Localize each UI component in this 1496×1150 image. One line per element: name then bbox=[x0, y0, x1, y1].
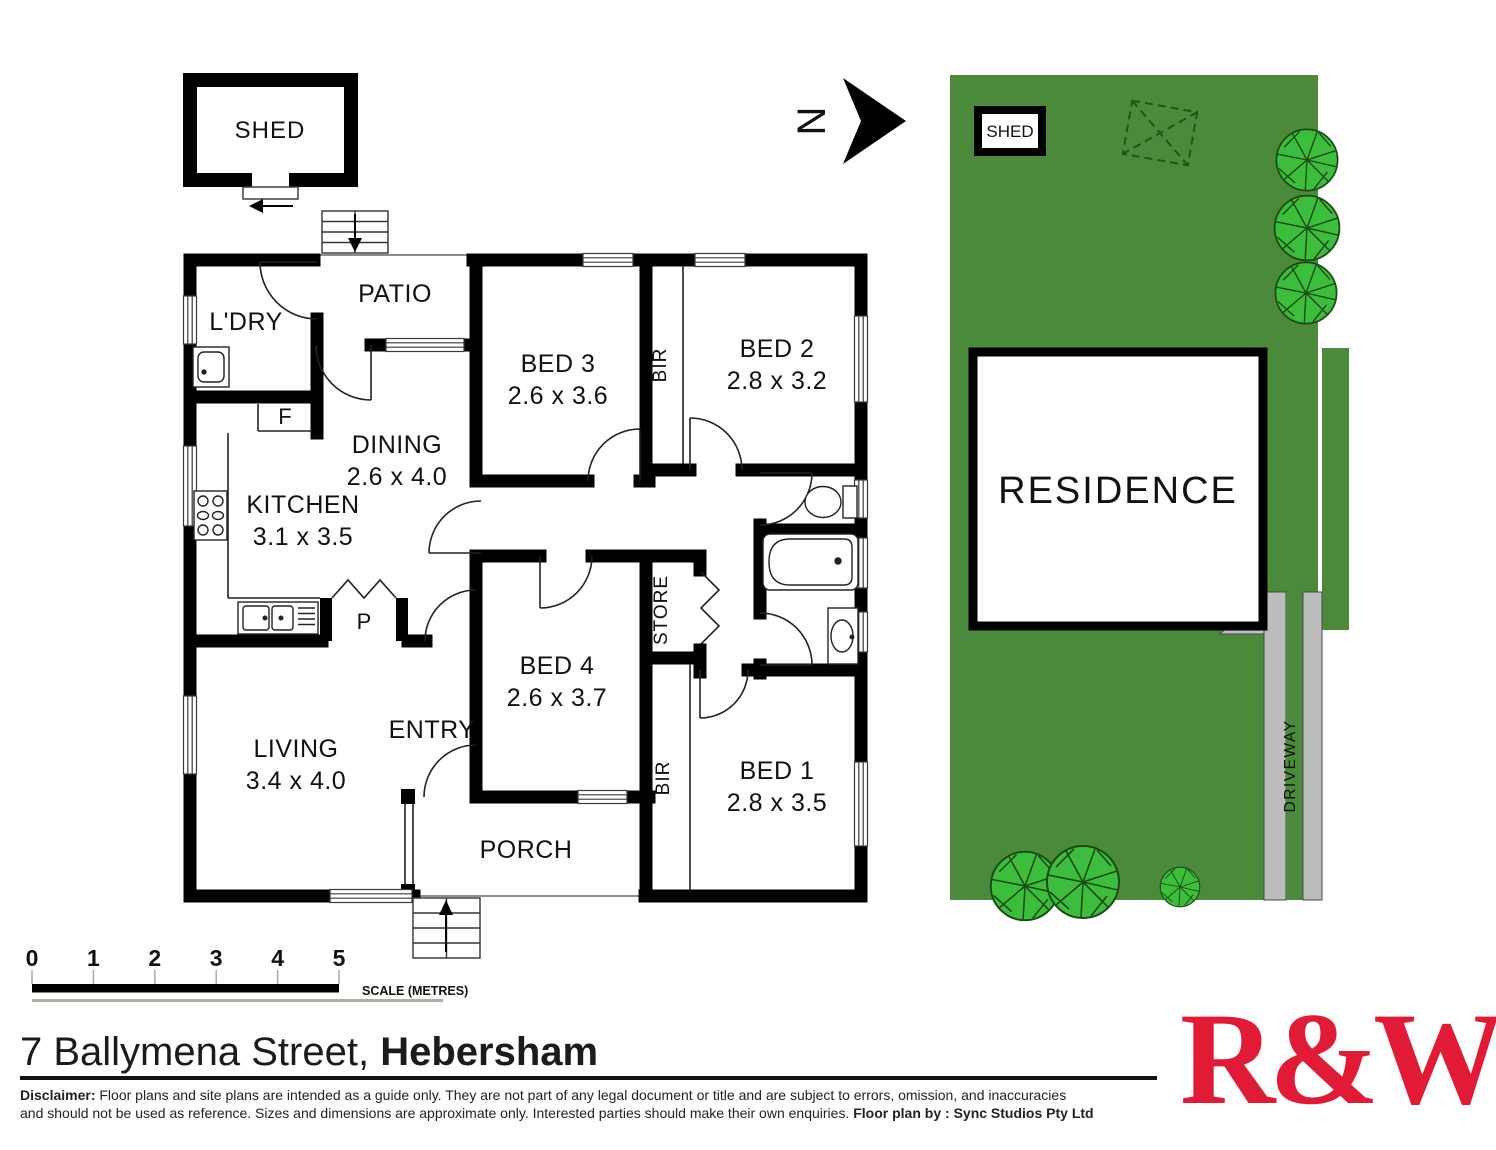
tree-icon bbox=[1160, 867, 1200, 907]
window-icon bbox=[695, 254, 745, 267]
lawn-lower bbox=[950, 592, 1265, 900]
window-icon bbox=[855, 762, 868, 846]
bir-top-label: BIR bbox=[650, 348, 671, 383]
room-label-porch: PORCH bbox=[480, 836, 573, 864]
residence-box: RESIDENCE bbox=[973, 352, 1263, 626]
vanity-icon bbox=[828, 608, 858, 664]
room-label-bed3: BED 3 bbox=[521, 350, 596, 378]
site-plan: DRIVEWAY SHED RESIDENCE bbox=[950, 75, 1349, 920]
disclaimer-line1: Disclaimer: Floor plans and site plans a… bbox=[20, 1087, 1180, 1105]
store-label: STORE bbox=[651, 575, 672, 645]
fridge-label: F bbox=[278, 404, 291, 429]
footer-divider bbox=[20, 1076, 1157, 1080]
address-street: 7 Ballymena Street, bbox=[20, 1030, 380, 1074]
disclaimer: Disclaimer: Floor plans and site plans a… bbox=[20, 1087, 1180, 1122]
room-dims-kitchen: 3.1 x 3.5 bbox=[253, 523, 353, 551]
scale-tick: 0 bbox=[26, 945, 39, 971]
residence-label: RESIDENCE bbox=[998, 470, 1238, 512]
window-icon bbox=[386, 339, 464, 352]
disclaimer-line2: and should not be used as reference. Siz… bbox=[20, 1105, 1180, 1123]
window-icon bbox=[184, 296, 197, 344]
north-label: N bbox=[790, 107, 834, 136]
address-suburb: Hebersham bbox=[380, 1030, 598, 1074]
floorplan-credit: Floor plan by : Sync Studios Pty Ltd bbox=[853, 1105, 1093, 1121]
porch-steps bbox=[413, 898, 480, 958]
room-labels: L'DRY PATIO BED 3 2.6 x 3.6 BED 2 2.8 x … bbox=[209, 280, 827, 864]
shed-outbuilding: SHED bbox=[190, 80, 351, 213]
compass: N bbox=[790, 78, 906, 164]
room-dims-bed1: 2.8 x 3.5 bbox=[727, 789, 827, 817]
room-label-bed2: BED 2 bbox=[740, 335, 815, 363]
room-label-kitchen: KITCHEN bbox=[246, 491, 359, 519]
window-icon bbox=[583, 254, 633, 267]
scale-tick: 4 bbox=[271, 945, 284, 971]
room-dims-dining: 2.6 x 4.0 bbox=[347, 463, 447, 491]
toilet-icon bbox=[805, 486, 857, 518]
room-label-ldry: L'DRY bbox=[209, 308, 283, 336]
laundry-tub-icon bbox=[193, 347, 229, 387]
window-icon bbox=[330, 890, 412, 903]
tree-icon bbox=[1047, 846, 1119, 918]
site-shed: SHED bbox=[978, 110, 1042, 152]
rw-logo: R&W bbox=[1180, 993, 1496, 1125]
window-icon bbox=[578, 791, 627, 804]
room-dims-bed2: 2.8 x 3.2 bbox=[727, 367, 827, 395]
north-arrow-icon bbox=[843, 78, 906, 164]
stove-icon bbox=[194, 491, 227, 540]
bir-bottom-label: BIR bbox=[653, 761, 674, 796]
shed-door-arrow-icon bbox=[249, 199, 263, 213]
driveway-strip-right bbox=[1303, 592, 1322, 900]
floorplan-canvas: DRIVEWAY SHED RESIDENCE bbox=[0, 0, 1496, 1150]
scale-tick: 3 bbox=[210, 945, 223, 971]
driveway-label: DRIVEWAY bbox=[1282, 720, 1299, 813]
floorplan-page: DRIVEWAY SHED RESIDENCE bbox=[0, 0, 1496, 1150]
room-label-bed4: BED 4 bbox=[520, 652, 595, 680]
pantry-bifold-icon bbox=[332, 580, 396, 598]
tree-icon bbox=[1276, 129, 1337, 190]
scale-tick: 1 bbox=[87, 945, 100, 971]
room-label-entry: ENTRY bbox=[389, 716, 476, 744]
shed-label: SHED bbox=[235, 117, 306, 144]
room-dims-living: 3.4 x 4.0 bbox=[246, 767, 346, 795]
room-label-patio: PATIO bbox=[358, 280, 432, 308]
store-bifold-icon bbox=[701, 572, 719, 644]
window-icon bbox=[184, 696, 197, 774]
disclaimer-label: Disclaimer: bbox=[20, 1087, 95, 1103]
scale-caption: SCALE (METRES) bbox=[362, 984, 468, 998]
room-dims-bed4: 2.6 x 3.7 bbox=[507, 684, 607, 712]
room-dims-bed3: 2.6 x 3.6 bbox=[508, 382, 608, 410]
scale-bar: 0 1 2 3 4 5 SCALE (METRES) bbox=[26, 945, 469, 1002]
tree-icon bbox=[1275, 262, 1336, 323]
tree-icon bbox=[1275, 196, 1340, 261]
room-label-dining: DINING bbox=[352, 431, 443, 459]
property-address: 7 Ballymena Street, Hebersham bbox=[20, 1030, 598, 1075]
scale-tick: 5 bbox=[333, 945, 346, 971]
room-label-bed1: BED 1 bbox=[740, 757, 815, 785]
site-shed-label: SHED bbox=[986, 122, 1033, 141]
lawn-sliver bbox=[1322, 348, 1349, 630]
pantry-label: P bbox=[357, 609, 372, 634]
room-label-living: LIVING bbox=[254, 735, 339, 763]
patio-steps bbox=[322, 211, 388, 253]
window-icon bbox=[855, 316, 868, 402]
kitchen-sink-icon bbox=[238, 602, 318, 634]
bathtub-icon bbox=[763, 534, 858, 590]
scale-tick: 2 bbox=[148, 945, 161, 971]
